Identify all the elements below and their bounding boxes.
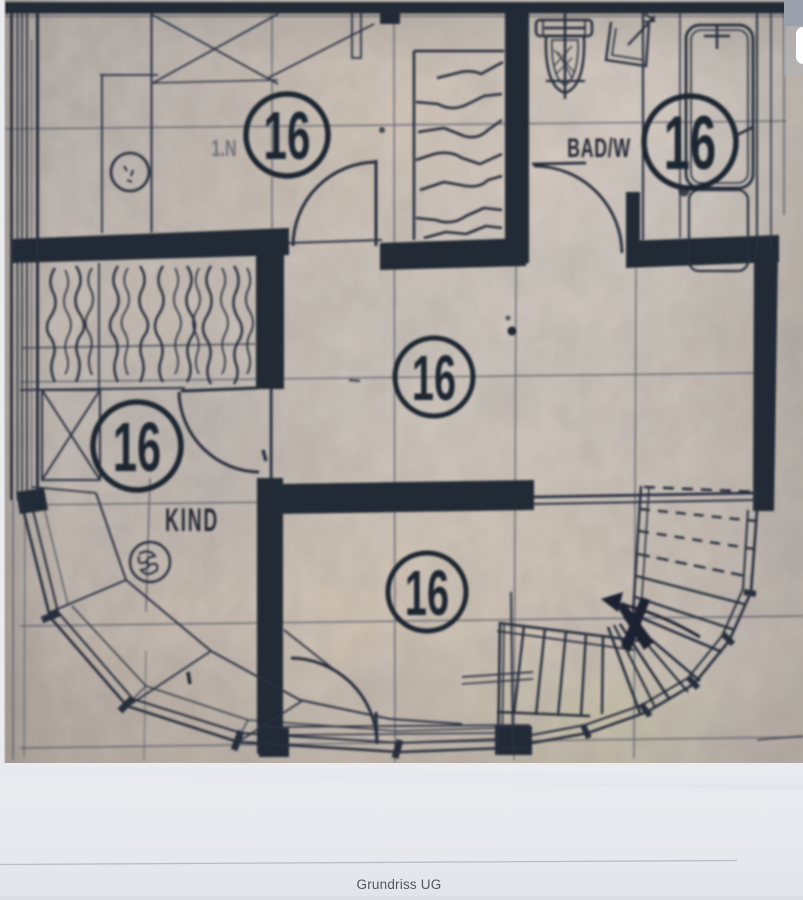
svg-text:16: 16	[264, 98, 311, 174]
svg-text:16: 16	[405, 559, 449, 630]
svg-text:KIND: KIND	[165, 502, 219, 538]
svg-text:16: 16	[664, 102, 716, 186]
svg-text:16: 16	[113, 408, 161, 486]
svg-text:16: 16	[412, 344, 456, 415]
svg-text:BAD/W: BAD/W	[567, 132, 631, 163]
svg-text:Grundriss UG: Grundriss UG	[357, 877, 442, 892]
svg-text:1.N: 1.N	[211, 136, 236, 161]
